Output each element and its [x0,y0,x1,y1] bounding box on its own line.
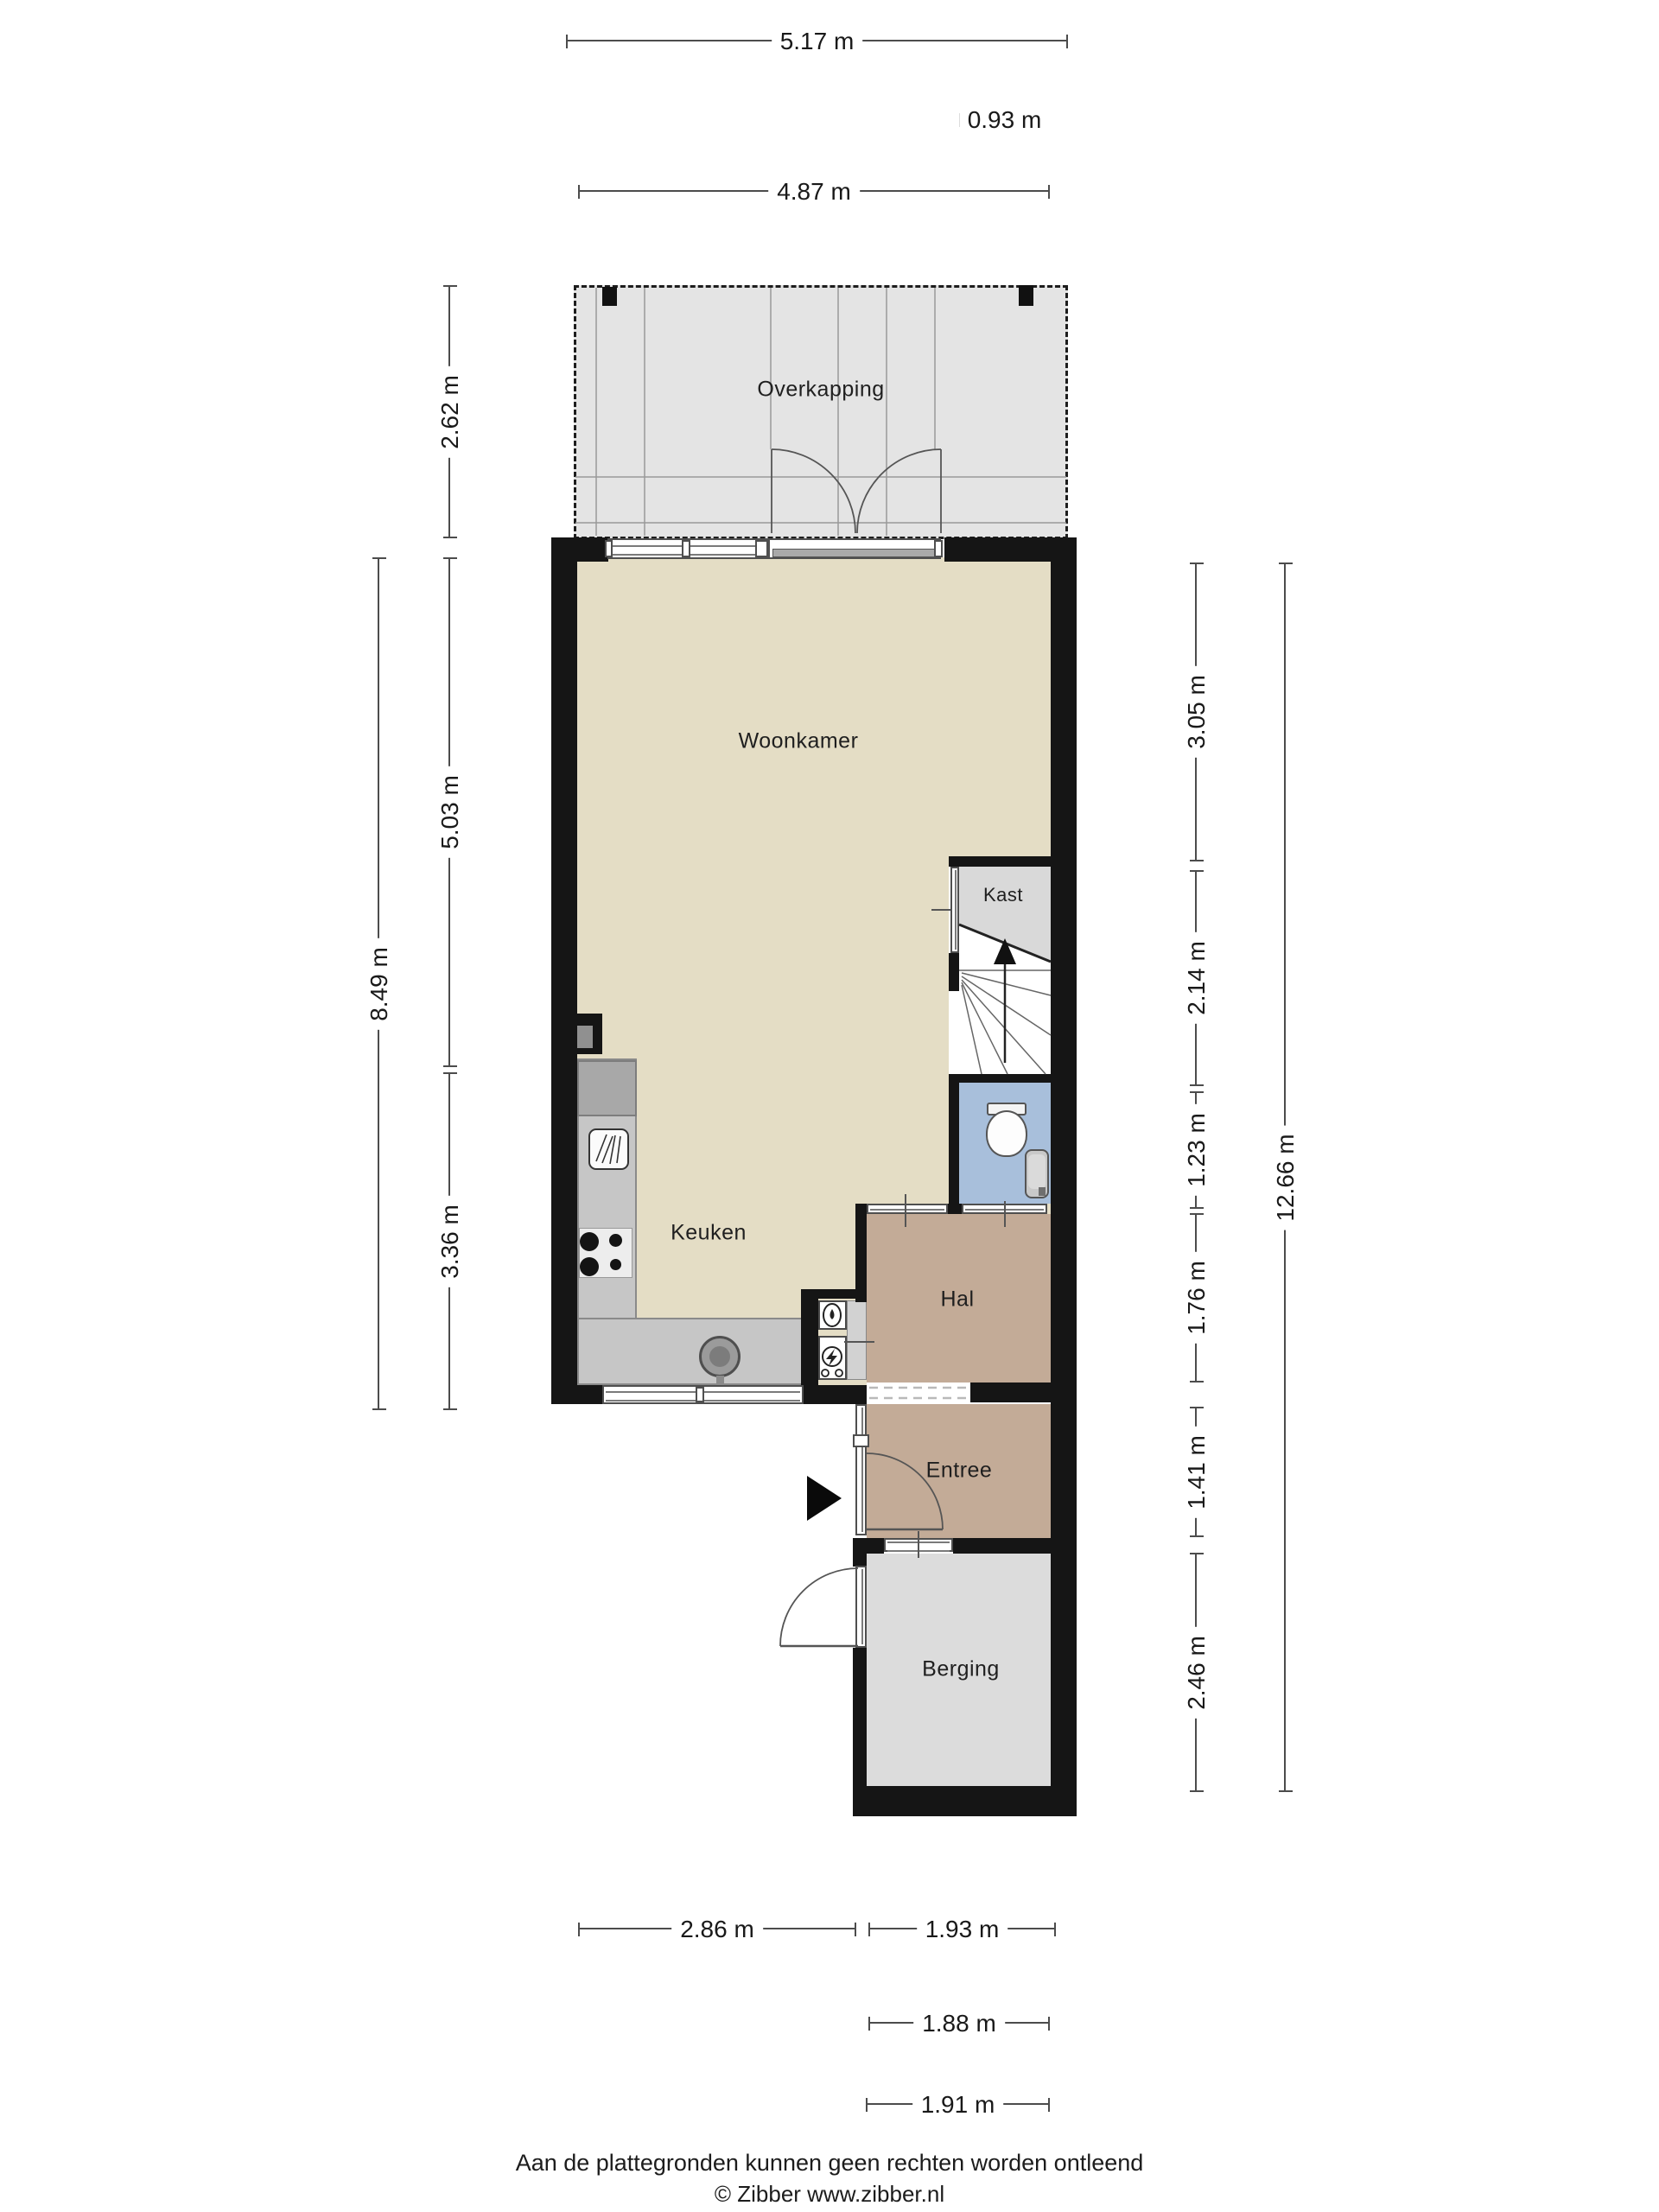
dimension-bottom-188: 1.88 m [868,2022,1050,2024]
room-label-keuken: Keuken [671,1221,747,1246]
canopy-post-icon [602,287,617,306]
oven-icon-detail [596,1135,620,1164]
dimension-right-246: 2.46 m [1195,1553,1197,1792]
dimension-left-849: 8.49 m [378,557,379,1410]
disclaimer-text: Aan de plattegronden kunnen geen rechten… [0,2150,1659,2177]
dimension-right-141: 1.41 m [1195,1407,1197,1537]
water-meter-icon [823,1304,841,1326]
dimension-left-336: 3.36 m [448,1072,450,1410]
room-label-hal: Hal [940,1287,974,1313]
dimension-bottom-191: 1.91 m [866,2103,1050,2105]
dimension-right-214: 2.14 m [1195,870,1197,1086]
dimension-top-517: 5.17 m [566,40,1068,41]
dimension-left-262: 2.62 m [448,285,450,538]
dimension-right-1266: 12.66 m [1284,563,1286,1792]
dimension-top-487: 4.87 m [578,190,1050,192]
copyright-text: © Zibber www.zibber.nl [0,2181,1659,2208]
room-label-entree: Entree [926,1459,993,1484]
canopy-post-icon [1019,285,1033,306]
dimension-bottom-286: 2.86 m [578,1928,856,1929]
entrance-arrow-icon [807,1476,842,1521]
opening-dashes [869,1388,968,1398]
dimension-left-503: 5.03 m [448,557,450,1067]
dimension-bottom-193: 1.93 m [868,1928,1056,1929]
dimension-right-123: 1.23 m [1195,1091,1197,1209]
canopy-roof-lines [575,288,1066,536]
room-label-woonkamer: Woonkamer [739,729,859,754]
plan-linework [0,0,1659,2212]
stairs-arrow-head [994,938,1016,964]
room-label-berging: Berging [922,1657,1000,1682]
dimension-right-305: 3.05 m [1195,563,1197,861]
electric-meter-icon [822,1347,842,1376]
patio-door-swing [772,449,941,533]
room-label-kast: Kast [983,884,1023,906]
room-label-overkapping: Overkapping [757,378,884,403]
berging-door-swing [780,1568,858,1646]
dimension-right-176: 1.76 m [1195,1213,1197,1382]
dimension-top-093: 0.93 m [959,118,1050,120]
